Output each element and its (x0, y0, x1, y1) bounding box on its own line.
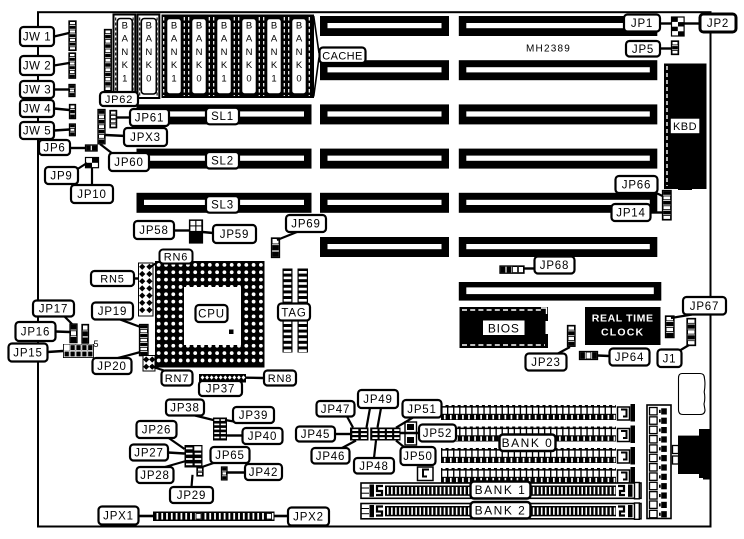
svg-text:K: K (221, 60, 228, 71)
svg-text:JW 1: JW 1 (23, 32, 51, 44)
svg-text:JP37: JP37 (206, 384, 235, 396)
svg-text:JP15: JP15 (13, 348, 42, 360)
svg-text:JP47: JP47 (321, 404, 350, 416)
svg-text:RN7: RN7 (165, 373, 189, 385)
svg-text:JW 2: JW 2 (23, 61, 51, 73)
svg-text:N: N (296, 47, 303, 58)
svg-text:K: K (171, 60, 178, 71)
svg-text:JP17: JP17 (39, 304, 68, 316)
svg-text:JP62: JP62 (105, 94, 133, 106)
svg-text:JP42: JP42 (249, 467, 278, 479)
svg-text:REAL TIME: REAL TIME (592, 313, 654, 325)
svg-text:JP23: JP23 (531, 357, 560, 369)
svg-text:JW 5: JW 5 (23, 126, 51, 138)
svg-text:JW 3: JW 3 (23, 85, 51, 97)
svg-text:B: B (146, 21, 152, 32)
svg-text:N: N (271, 47, 278, 58)
svg-text:JP20: JP20 (97, 361, 126, 373)
svg-text:CLOCK: CLOCK (601, 327, 644, 339)
svg-text:JP52: JP52 (423, 428, 452, 440)
svg-text:A: A (171, 34, 178, 45)
svg-text:JP45: JP45 (301, 429, 330, 441)
svg-text:JP68: JP68 (540, 260, 569, 272)
svg-text:A: A (271, 34, 278, 45)
svg-text:N: N (221, 47, 228, 58)
svg-text:A: A (246, 34, 253, 45)
svg-text:CPU: CPU (198, 309, 225, 321)
svg-text:1: 1 (122, 73, 127, 84)
svg-text:JP66: JP66 (622, 180, 651, 192)
svg-text:JP65: JP65 (215, 450, 244, 462)
svg-text:JP19: JP19 (98, 306, 127, 318)
svg-text:SL2: SL2 (211, 155, 234, 167)
svg-text:MH2389: MH2389 (526, 44, 571, 55)
svg-text:JP64: JP64 (615, 352, 644, 364)
svg-text:JP40: JP40 (248, 431, 277, 443)
svg-text:JW 4: JW 4 (23, 104, 51, 116)
svg-text:JP2: JP2 (707, 18, 729, 30)
svg-text:A: A (146, 34, 153, 45)
svg-text:0: 0 (246, 73, 251, 84)
svg-text:N: N (246, 47, 253, 58)
svg-text:KBD: KBD (673, 121, 697, 133)
svg-text:5: 5 (93, 339, 98, 349)
svg-text:JPX3: JPX3 (130, 132, 161, 144)
svg-text:SL1: SL1 (211, 111, 234, 123)
svg-text:0: 0 (196, 73, 201, 84)
svg-text:RN5: RN5 (100, 274, 124, 286)
svg-text:B: B (271, 21, 277, 32)
svg-text:JPX2: JPX2 (293, 512, 324, 524)
svg-text:K: K (196, 60, 203, 71)
svg-text:0: 0 (296, 73, 301, 84)
svg-text:JP28: JP28 (140, 470, 169, 482)
svg-text:JP59: JP59 (220, 229, 249, 241)
svg-text:JP58: JP58 (139, 225, 168, 237)
svg-text:JP27: JP27 (134, 448, 163, 460)
svg-text:1: 1 (271, 73, 276, 84)
svg-text:A: A (296, 34, 303, 45)
svg-text:JP69: JP69 (291, 219, 320, 231)
svg-text:B: B (296, 21, 302, 32)
svg-text:K: K (146, 60, 153, 71)
svg-text:TAG: TAG (281, 307, 306, 319)
svg-text:A: A (122, 34, 129, 45)
svg-text:JP6: JP6 (43, 143, 65, 155)
svg-text:0: 0 (146, 73, 151, 84)
svg-text:J1: J1 (663, 353, 677, 365)
svg-text:JP5: JP5 (632, 44, 654, 56)
svg-text:B: B (246, 21, 252, 32)
svg-text:BIOS: BIOS (488, 321, 520, 335)
svg-text:JP60: JP60 (114, 157, 143, 169)
svg-text:K: K (246, 60, 253, 71)
svg-text:1: 1 (221, 73, 226, 84)
svg-text:BANK 1: BANK 1 (475, 483, 527, 497)
svg-text:N: N (121, 47, 128, 58)
svg-text:BANK 0: BANK 0 (502, 436, 554, 450)
svg-text:A: A (221, 34, 228, 45)
svg-text:JPX1: JPX1 (103, 511, 134, 523)
svg-text:RN6: RN6 (164, 252, 188, 264)
svg-text:RN8: RN8 (268, 373, 292, 385)
svg-text:JP29: JP29 (177, 490, 206, 502)
svg-text:BANK 2: BANK 2 (475, 503, 527, 517)
svg-text:N: N (171, 47, 178, 58)
svg-text:JP16: JP16 (21, 327, 50, 339)
svg-text:JP39: JP39 (239, 410, 268, 422)
svg-text:K: K (296, 60, 303, 71)
svg-text:JP9: JP9 (50, 171, 72, 183)
svg-text:B: B (221, 21, 227, 32)
svg-text:JP10: JP10 (77, 189, 106, 201)
svg-text:JP26: JP26 (142, 425, 171, 437)
svg-text:JP46: JP46 (316, 451, 345, 463)
svg-text:SL3: SL3 (211, 199, 234, 211)
svg-text:JP1: JP1 (631, 18, 653, 30)
svg-text:JP61: JP61 (135, 113, 164, 125)
svg-text:JP67: JP67 (690, 301, 719, 313)
svg-text:N: N (145, 47, 152, 58)
svg-text:CACHE: CACHE (322, 50, 363, 62)
svg-text:B: B (122, 21, 128, 32)
svg-text:N: N (196, 47, 203, 58)
svg-text:JP49: JP49 (363, 394, 392, 406)
svg-text:1: 1 (171, 73, 176, 84)
svg-text:K: K (271, 60, 278, 71)
svg-text:A: A (196, 34, 203, 45)
svg-text:JP48: JP48 (359, 461, 388, 473)
svg-text:K: K (122, 60, 129, 71)
svg-text:JP51: JP51 (407, 404, 436, 416)
svg-text:B: B (196, 21, 202, 32)
svg-text:JP14: JP14 (616, 208, 645, 220)
svg-text:JP38: JP38 (170, 403, 199, 415)
svg-text:B: B (171, 21, 177, 32)
svg-text:JP50: JP50 (403, 451, 432, 463)
